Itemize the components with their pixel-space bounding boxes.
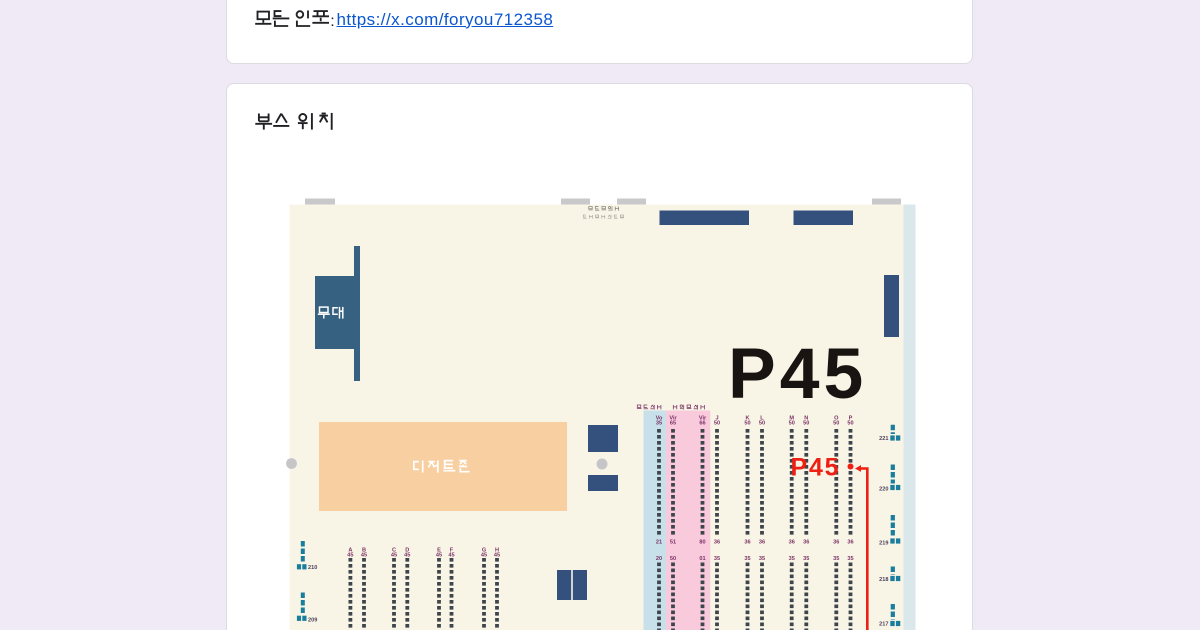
svg-text:66: 66 [699, 420, 705, 426]
svg-text:218: 218 [879, 577, 888, 583]
svg-text:50: 50 [670, 556, 676, 562]
svg-text:35: 35 [744, 556, 750, 562]
svg-text:35: 35 [803, 556, 809, 562]
svg-text:01: 01 [699, 556, 705, 562]
svg-text:21: 21 [656, 540, 662, 546]
svg-text:36: 36 [744, 540, 750, 546]
svg-text:45: 45 [436, 552, 442, 558]
svg-text:45: 45 [404, 552, 410, 558]
svg-text:65: 65 [670, 420, 676, 426]
svg-text:36: 36 [714, 540, 720, 546]
svg-text:220: 220 [879, 487, 888, 493]
svg-text:45: 45 [481, 552, 487, 558]
svg-text:35: 35 [833, 556, 839, 562]
svg-text:36: 36 [789, 540, 795, 546]
svg-text:45: 45 [361, 552, 367, 558]
svg-text:36: 36 [847, 540, 853, 546]
svg-text:51: 51 [670, 540, 676, 546]
svg-text:45: 45 [448, 552, 454, 558]
svg-text:20: 20 [656, 556, 662, 562]
svg-text:45: 45 [494, 552, 500, 558]
svg-text:36: 36 [833, 540, 839, 546]
svg-text:P45: P45 [728, 334, 867, 414]
svg-text:80: 80 [699, 540, 705, 546]
svg-text:210: 210 [308, 565, 317, 571]
svg-text:217: 217 [879, 622, 888, 628]
svg-text:50: 50 [847, 420, 853, 426]
svg-text:219: 219 [879, 541, 888, 547]
svg-text:35: 35 [847, 556, 853, 562]
svg-text:P45: P45 [791, 454, 841, 482]
svg-text:50: 50 [744, 420, 750, 426]
svg-text:35: 35 [759, 556, 765, 562]
svg-text:35: 35 [656, 420, 662, 426]
svg-text:50: 50 [803, 420, 809, 426]
svg-text:50: 50 [789, 420, 795, 426]
svg-text:50: 50 [759, 420, 765, 426]
svg-text:36: 36 [803, 540, 809, 546]
svg-text:50: 50 [714, 420, 720, 426]
svg-text:36: 36 [759, 540, 765, 546]
svg-text:45: 45 [391, 552, 397, 558]
svg-text:50: 50 [833, 420, 839, 426]
svg-text:35: 35 [714, 556, 720, 562]
svg-text:45: 45 [347, 552, 353, 558]
svg-text:221: 221 [879, 436, 888, 442]
svg-text::: : [330, 13, 334, 30]
svg-text:35: 35 [789, 556, 795, 562]
svg-text:209: 209 [308, 618, 317, 624]
